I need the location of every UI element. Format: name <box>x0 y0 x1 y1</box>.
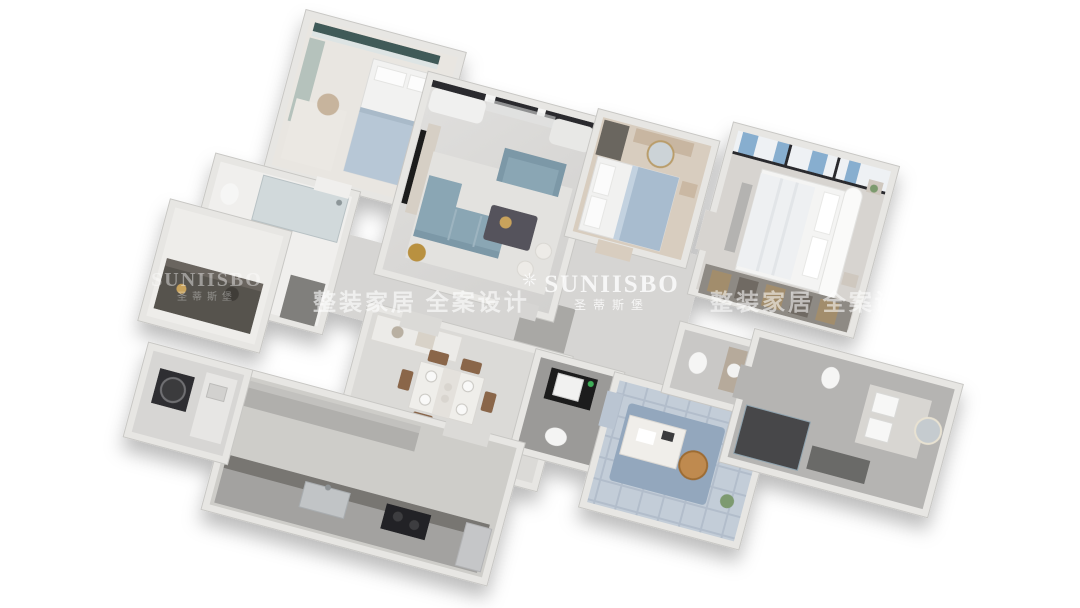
apartment <box>95 0 1014 608</box>
room-master-bath <box>719 329 963 518</box>
room-master-bedroom <box>687 122 899 338</box>
floorplan-render: SUNIISBO 圣蒂斯堡 整装家居 全案设计 SUNIISBO 圣蒂斯堡 整装… <box>0 0 1080 608</box>
apartment-plan-svg <box>0 0 1080 608</box>
